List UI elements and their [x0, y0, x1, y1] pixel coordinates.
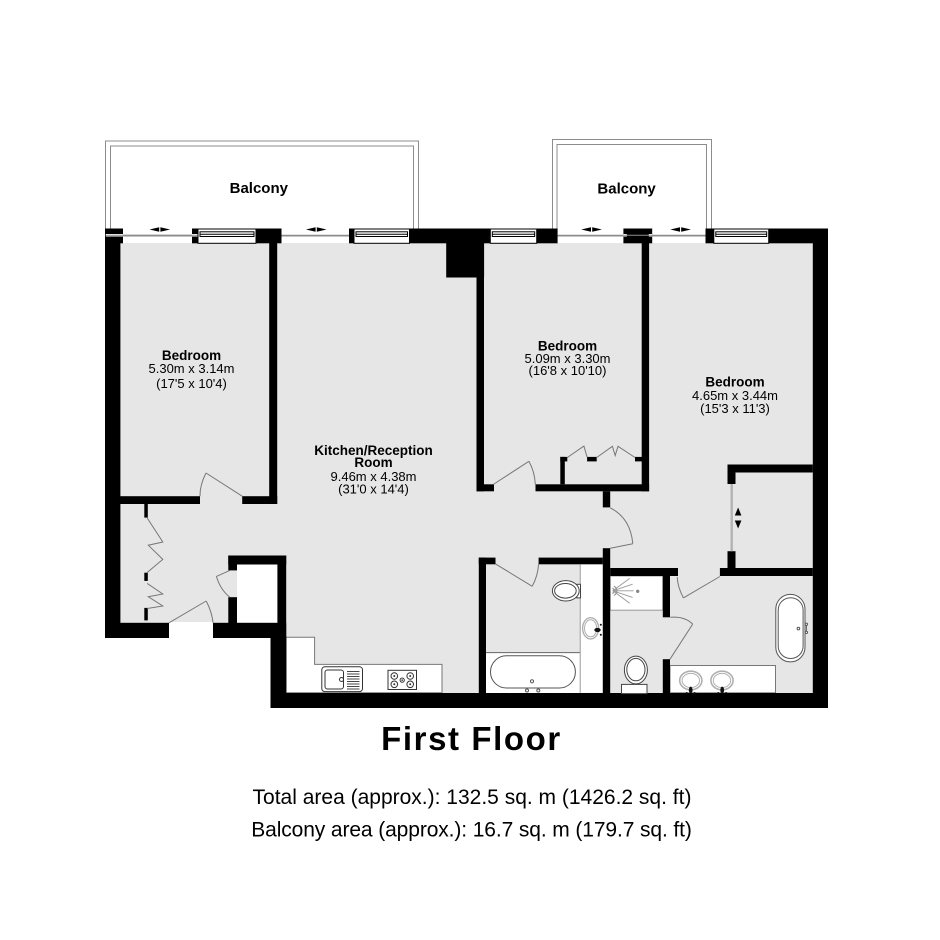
svg-text:Balcony: Balcony — [230, 180, 289, 197]
svg-text:(17'5 x 10'4): (17'5 x 10'4) — [156, 376, 227, 391]
svg-text:First Floor: First Floor — [381, 720, 562, 757]
svg-text:5.30m x 3.14m: 5.30m x 3.14m — [149, 361, 235, 376]
svg-text:Balcony: Balcony — [597, 181, 656, 198]
svg-text:(16'8 x 10'10): (16'8 x 10'10) — [529, 363, 607, 378]
svg-text:Total area (approx.): 132.5 sq: Total area (approx.): 132.5 sq. m (1426.… — [253, 786, 692, 809]
svg-text:Balcony area (approx.): 16.7 s: Balcony area (approx.): 16.7 sq. m (179.… — [251, 819, 692, 842]
svg-text:(31'0 x 14'4): (31'0 x 14'4) — [338, 482, 409, 497]
svg-text:(15'3 x 11'3): (15'3 x 11'3) — [700, 401, 770, 416]
svg-text:Room: Room — [354, 455, 392, 470]
